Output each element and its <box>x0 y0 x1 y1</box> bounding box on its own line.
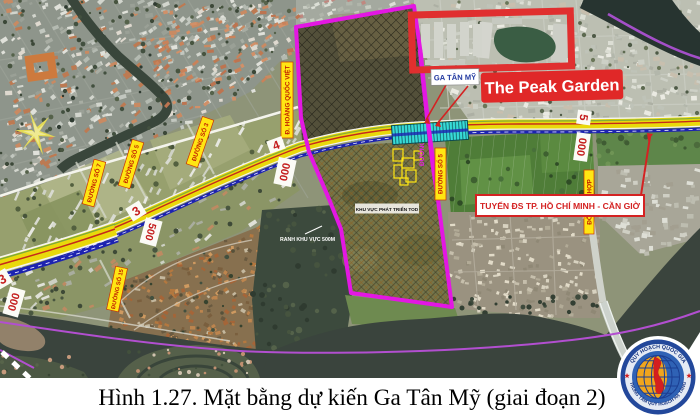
svg-text:KHU VỰC PHÁT TRIỂN TOD: KHU VỰC PHÁT TRIỂN TOD <box>356 206 419 212</box>
svg-text:The Peak Garden: The Peak Garden <box>484 76 619 98</box>
svg-text:Hình 1.27. Mặt bằng dự kiến Ga: Hình 1.27. Mặt bằng dự kiến Ga Tân Mỹ (g… <box>98 385 605 411</box>
svg-text:000: 000 <box>574 137 588 157</box>
svg-text:ĐƯỜNG: ĐƯỜNG <box>417 141 426 166</box>
svg-text:GA TÂN MỸ: GA TÂN MỸ <box>434 73 476 83</box>
svg-text:RANH KHU VỰC 500M: RANH KHU VỰC 500M <box>280 237 335 243</box>
svg-text:TUYẾN ĐS TP. HỒ CHÍ MINH - CẦN: TUYẾN ĐS TP. HỒ CHÍ MINH - CẦN GIỜ <box>480 200 641 211</box>
svg-text:ĐƯỜNG SỐ 5: ĐƯỜNG SỐ 5 <box>437 153 445 194</box>
